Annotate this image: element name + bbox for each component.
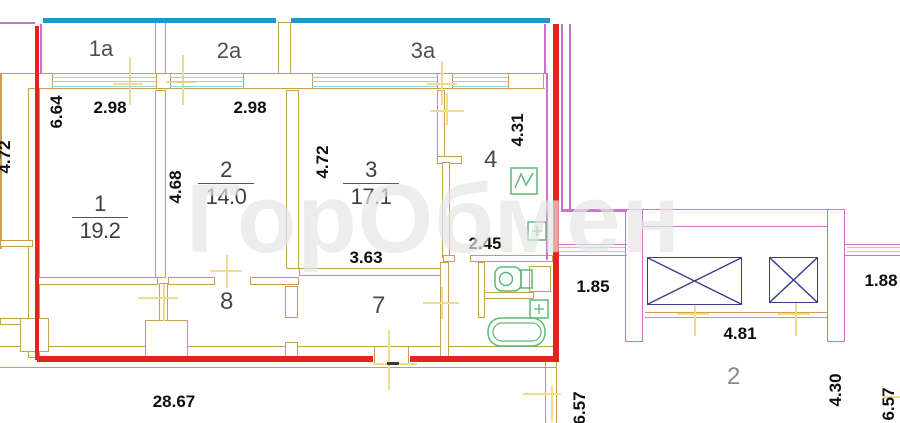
axis-mark bbox=[446, 93, 448, 125]
wall-segment bbox=[0, 346, 557, 347]
balcony-side-wall bbox=[544, 24, 546, 74]
wall-segment bbox=[508, 73, 509, 89]
wall-segment bbox=[156, 73, 157, 89]
boundary-red bbox=[37, 356, 373, 362]
dim-label: 6.57 bbox=[570, 373, 590, 423]
shaft-sill bbox=[645, 317, 830, 318]
neighbor-balcony-wall bbox=[0, 22, 35, 24]
wall-segment bbox=[168, 277, 215, 285]
boundary-red bbox=[35, 26, 39, 360]
elevator-shaft-wall bbox=[827, 209, 845, 342]
wall-segment bbox=[243, 73, 244, 89]
axis-mark bbox=[778, 313, 810, 315]
window bbox=[52, 77, 156, 87]
door-jamb bbox=[374, 347, 375, 363]
dim-label: 4.30 bbox=[826, 355, 846, 423]
lobby-window bbox=[847, 251, 900, 252]
wall-segment bbox=[285, 342, 298, 357]
axis-mark bbox=[163, 284, 165, 321]
window bbox=[312, 77, 437, 87]
dim-label: 2.98 bbox=[215, 98, 285, 118]
dim-label: 6.57 bbox=[879, 369, 899, 423]
lobby-window bbox=[847, 247, 900, 248]
window bbox=[170, 77, 243, 87]
axis-mark bbox=[523, 393, 561, 395]
balcony-divider bbox=[278, 22, 291, 74]
stairwell-label: 2 bbox=[727, 363, 740, 391]
window bbox=[452, 77, 508, 87]
dim-label: 2.98 bbox=[75, 98, 145, 118]
room-label: 8 bbox=[220, 288, 233, 316]
entry-vestibule bbox=[145, 320, 188, 357]
bathtub-icon bbox=[487, 316, 547, 348]
balcony-label: 1а bbox=[81, 36, 121, 62]
neighbor-wall bbox=[0, 240, 33, 247]
dim-label: 28.67 bbox=[134, 392, 214, 412]
wall-segment bbox=[155, 90, 166, 278]
axis-mark bbox=[430, 110, 464, 112]
dim-label: 1.88 bbox=[846, 271, 900, 291]
axis-mark bbox=[551, 386, 553, 422]
watermark: ГорОбмен bbox=[186, 163, 681, 275]
dim-label: 4.81 bbox=[705, 324, 775, 344]
wall-segment bbox=[285, 286, 298, 318]
axis-mark bbox=[388, 330, 390, 390]
room-area: 19.2 bbox=[72, 218, 128, 243]
door-jamb bbox=[408, 347, 409, 363]
axis-mark bbox=[677, 313, 709, 315]
dim-label: 4.68 bbox=[166, 152, 186, 222]
room-label: 1 19.2 bbox=[72, 192, 128, 243]
dim-label: 4.72 bbox=[0, 122, 15, 192]
balcony-side-wall bbox=[40, 24, 42, 74]
balcony-railing bbox=[43, 18, 276, 23]
wall-segment bbox=[37, 277, 158, 285]
balcony-divider bbox=[155, 22, 166, 74]
wall-segment bbox=[37, 88, 545, 89]
lobby-opening bbox=[845, 255, 900, 256]
axis-mark bbox=[423, 302, 459, 304]
wall-segment bbox=[0, 73, 546, 74]
balcony-railing bbox=[291, 18, 550, 23]
wall-segment bbox=[437, 73, 438, 89]
axis-mark bbox=[138, 297, 178, 299]
balcony-label: 3а bbox=[403, 38, 443, 64]
wall-segment bbox=[0, 367, 557, 368]
floorplan: ГорОбмен bbox=[0, 0, 900, 423]
wall-segment bbox=[543, 73, 544, 89]
lobby-opening bbox=[845, 244, 900, 245]
wall-segment bbox=[250, 277, 299, 285]
elevator-small bbox=[769, 257, 818, 303]
room-label: 7 bbox=[372, 292, 385, 320]
dim-label: 4.31 bbox=[508, 95, 528, 165]
room-number: 1 bbox=[72, 192, 128, 218]
balcony-label: 2а bbox=[209, 38, 249, 64]
boundary-red bbox=[410, 356, 553, 362]
dim-label: 6.64 bbox=[47, 77, 67, 147]
dim-label: 1.85 bbox=[558, 277, 628, 297]
entry-door-threshold bbox=[387, 362, 399, 365]
